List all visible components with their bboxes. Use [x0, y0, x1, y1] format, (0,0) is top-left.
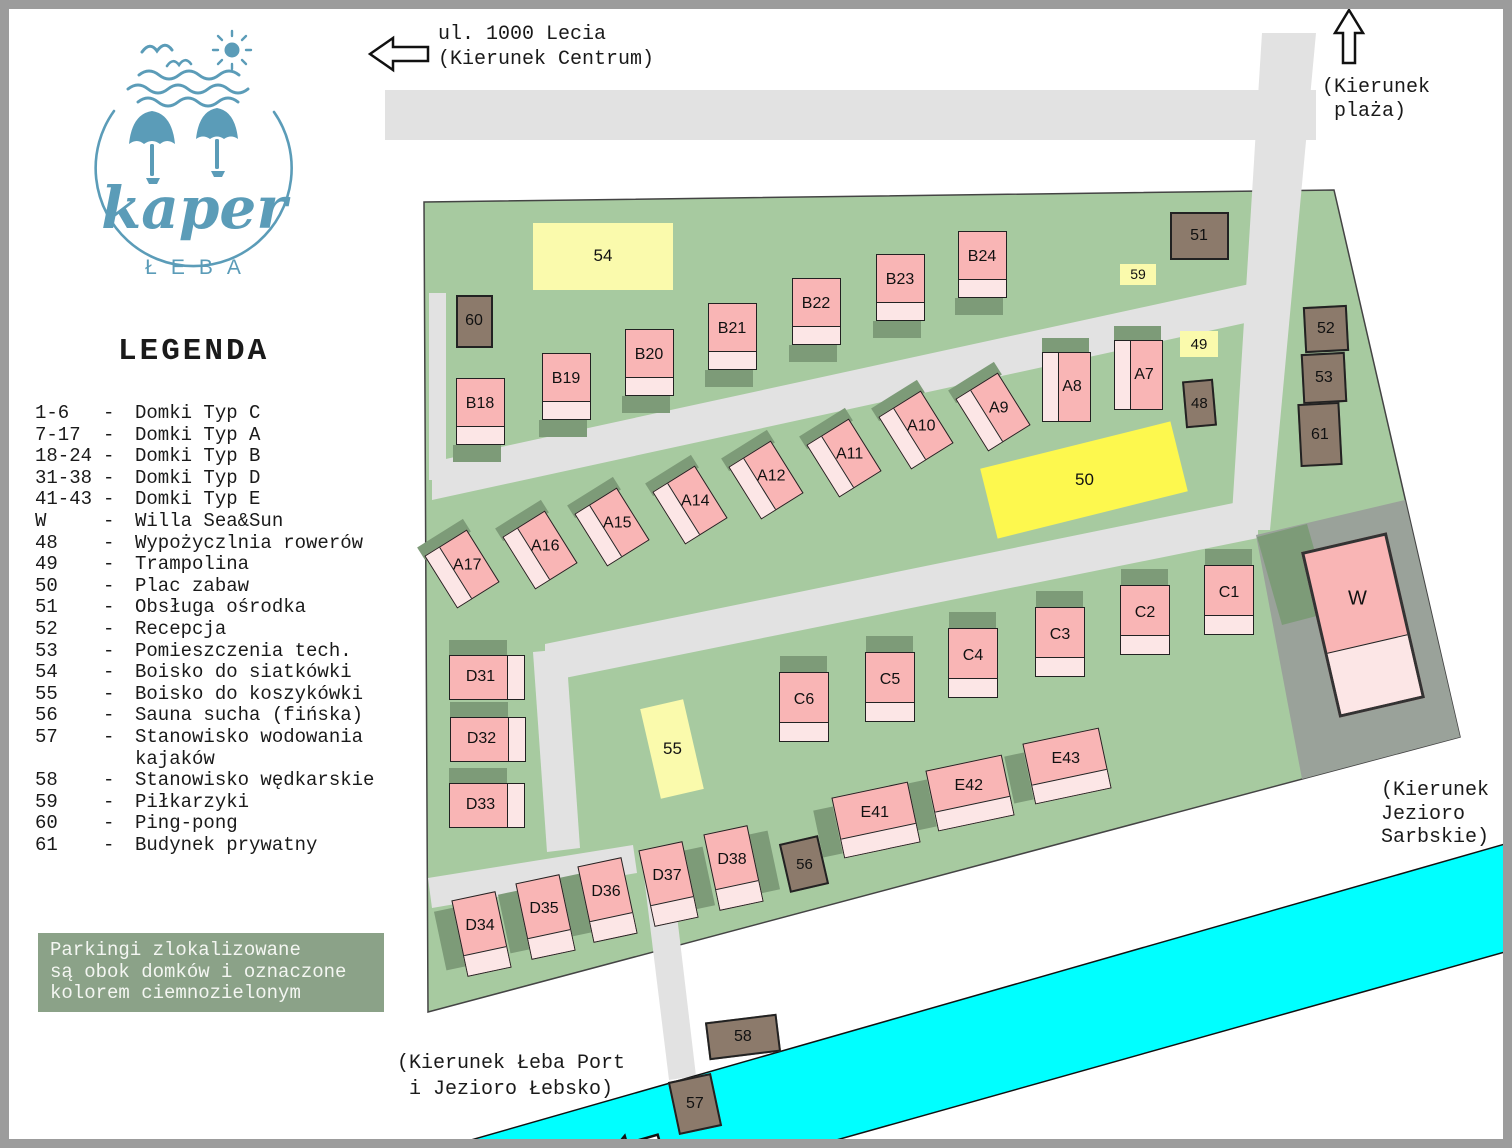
- parking-B24: [955, 298, 1003, 315]
- parking-B22: [789, 345, 837, 362]
- label-A10: A10: [907, 418, 935, 436]
- umbrella-icon: [196, 108, 238, 177]
- legend-key: 52: [35, 619, 103, 641]
- legend-item: 54-Boisko do siatkówki: [35, 662, 405, 684]
- parking-B18: [453, 445, 501, 462]
- legend-key: 53: [35, 641, 103, 663]
- parking-note: Parkingi zlokalizowane są obok domków i …: [38, 933, 384, 1012]
- legend-dash: -: [103, 576, 135, 598]
- label-D38: D38: [717, 851, 746, 869]
- cottage-A8: A8: [1042, 352, 1091, 422]
- legend-item: 49-Trampolina: [35, 554, 405, 576]
- porch-B24: [959, 279, 1006, 297]
- label-56: 56: [796, 856, 813, 873]
- legend-key: 61: [35, 835, 103, 857]
- porch-A8: [1043, 353, 1059, 421]
- legend-key: 1-6: [35, 403, 103, 425]
- label-A16: A16: [531, 538, 559, 556]
- porch-B22: [793, 326, 840, 344]
- label-A8: A8: [1062, 378, 1082, 396]
- porch-B18: [457, 426, 504, 444]
- legend-dash: -: [103, 770, 135, 792]
- direction-port: (Kierunek Łeba Port i Jezioro Łebsko): [397, 1051, 625, 1103]
- waves-icon: [128, 71, 248, 106]
- label-C4: C4: [963, 647, 983, 665]
- parking-note-line: Parkingi zlokalizowane: [50, 940, 372, 962]
- legend-label: Stanowisko wędkarskie: [135, 770, 387, 792]
- logo-brand: kaper: [101, 174, 291, 242]
- road-left-stub: [429, 293, 446, 480]
- sun-icon: [213, 31, 251, 69]
- legend-key: 54: [35, 662, 103, 684]
- legend-label: Piłkarzyki: [135, 792, 387, 814]
- parking-D31: [449, 640, 507, 655]
- legend-dash: -: [103, 489, 135, 511]
- legend-label: Domki Typ B: [135, 446, 387, 468]
- parking-note-line: kolorem ciemnozielonym: [50, 983, 372, 1005]
- label-51: 51: [1190, 227, 1208, 245]
- legend-label: Budynek prywatny: [135, 835, 387, 857]
- legend-label: Wypożyczlnia rowerów: [135, 533, 387, 555]
- label-D31: D31: [466, 668, 495, 686]
- label-D35: D35: [529, 900, 558, 918]
- legend-key: 49: [35, 554, 103, 576]
- label-52: 52: [1317, 320, 1335, 338]
- parking-C3: [1036, 591, 1083, 607]
- legend-dash: -: [103, 662, 135, 684]
- porch-C4: [949, 678, 997, 697]
- legend-item: 51-Obsługa ośrodka: [35, 597, 405, 619]
- label-55: 55: [663, 739, 682, 759]
- porch-B23: [877, 302, 924, 320]
- porch-B21: [709, 351, 756, 369]
- label-61: 61: [1311, 425, 1329, 443]
- label-D33: D33: [466, 796, 495, 814]
- legend-label: Domki Typ A: [135, 425, 387, 447]
- parking-B23: [873, 321, 921, 338]
- porch-C5: [866, 702, 914, 721]
- resort-map-page: kaper ŁEBA ul. 1000 Lecia(Kierunek Centr…: [0, 0, 1512, 1148]
- legend-item: 31-38-Domki Typ D: [35, 468, 405, 490]
- legend-key: 41-43: [35, 489, 103, 511]
- label-C2: C2: [1135, 604, 1155, 622]
- legend-dash: -: [103, 705, 135, 727]
- porch-C3: [1036, 657, 1084, 676]
- label-59: 59: [1130, 266, 1146, 282]
- label-A14: A14: [681, 493, 709, 511]
- parking-D32: [450, 702, 508, 717]
- legend-item: 57-Stanowisko wodowania kajaków: [35, 727, 405, 770]
- legend-dash: -: [103, 468, 135, 490]
- parking-A7: [1114, 326, 1161, 340]
- label-49: 49: [1191, 336, 1208, 353]
- cottage-B18: B18: [456, 378, 505, 445]
- legend-label: Recepcja: [135, 619, 387, 641]
- cottage-C1: C1: [1204, 565, 1254, 635]
- label-B23: B23: [886, 271, 914, 289]
- legend-label: Domki Typ C: [135, 403, 387, 425]
- label-A11: A11: [836, 446, 863, 464]
- legend-key: 60: [35, 813, 103, 835]
- legend-key: W: [35, 511, 103, 533]
- legend-item: W-Willa Sea&Sun: [35, 511, 405, 533]
- label-C6: C6: [794, 691, 814, 709]
- legend-dash: -: [103, 684, 135, 706]
- legend-key: 58: [35, 770, 103, 792]
- legend-item: 56-Sauna sucha (fińska): [35, 705, 405, 727]
- legend-dash: -: [103, 641, 135, 663]
- legend-item: 53-Pomieszczenia tech.: [35, 641, 405, 663]
- legend-key: 18-24: [35, 446, 103, 468]
- legend-dash: -: [103, 619, 135, 641]
- parking-B19: [539, 420, 587, 437]
- legend-item: 58-Stanowisko wędkarskie: [35, 770, 405, 792]
- legend-label: Domki Typ D: [135, 468, 387, 490]
- porch-B19: [543, 401, 590, 419]
- label-C1: C1: [1219, 584, 1239, 602]
- parking-note-line: są obok domków i oznaczone: [50, 962, 372, 984]
- area-61: 61: [1297, 401, 1342, 466]
- porch-C2: [1121, 635, 1169, 654]
- parking-C2: [1121, 569, 1168, 585]
- legend-key: 7-17: [35, 425, 103, 447]
- label-B18: B18: [466, 395, 494, 413]
- porch-A7: [1115, 341, 1131, 409]
- legend-list: 1-6-Domki Typ C7-17-Domki Typ A18-24-Dom…: [35, 403, 405, 856]
- legend-key: 50: [35, 576, 103, 598]
- direction-sarbskie: (KierunekJezioroSarbskie): [1381, 779, 1489, 850]
- label-B24: B24: [968, 248, 996, 266]
- legend-item: 7-17-Domki Typ A: [35, 425, 405, 447]
- legend-label: Sauna sucha (fińska): [135, 705, 387, 727]
- label-B21: B21: [718, 320, 746, 338]
- cottage-A7: A7: [1114, 340, 1163, 410]
- cottage-C3: C3: [1035, 607, 1085, 677]
- label-A12: A12: [757, 468, 785, 486]
- area-59: 59: [1120, 264, 1156, 285]
- area-51: 51: [1170, 212, 1229, 260]
- legend-dash: -: [103, 554, 135, 576]
- logo-city: ŁEBA: [145, 256, 255, 279]
- cottage-D32: D32: [450, 717, 526, 762]
- label-A9: A9: [989, 400, 1009, 418]
- label-A15: A15: [603, 515, 631, 533]
- porch-D31: [507, 656, 524, 699]
- label-A7: A7: [1134, 366, 1154, 384]
- legend-item: 41-43-Domki Typ E: [35, 489, 405, 511]
- porch-D32: [508, 718, 525, 761]
- porch-B20: [626, 377, 673, 395]
- label-48: 48: [1191, 395, 1208, 412]
- legend-key: 51: [35, 597, 103, 619]
- legend-label: Boisko do siatkówki: [135, 662, 387, 684]
- cottage-B21: B21: [708, 303, 757, 370]
- legend-item: 55-Boisko do koszykówki: [35, 684, 405, 706]
- label-C3: C3: [1050, 626, 1070, 644]
- street-label: ul. 1000 Lecia(Kierunek Centrum): [438, 22, 654, 72]
- label-E42: E42: [954, 777, 982, 795]
- cottage-D33: D33: [449, 783, 525, 828]
- bird-icon: [142, 45, 172, 52]
- label-D34: D34: [465, 917, 494, 935]
- label-C5: C5: [880, 671, 900, 689]
- label-B22: B22: [802, 295, 830, 313]
- legend-item: 48-Wypożyczlnia rowerów: [35, 533, 405, 555]
- legend-key: 57: [35, 727, 103, 770]
- porch-C6: [780, 722, 828, 741]
- cottage-C4: C4: [948, 628, 998, 698]
- label-60: 60: [465, 312, 483, 330]
- legend-dash: -: [103, 727, 135, 770]
- legend-item: 61-Budynek prywatny: [35, 835, 405, 857]
- label-54: 54: [594, 246, 613, 266]
- porch-C1: [1205, 615, 1253, 634]
- legend-item: 52-Recepcja: [35, 619, 405, 641]
- label-57: 57: [686, 1095, 704, 1113]
- label-A17: A17: [453, 557, 481, 575]
- legend-item: 50-Plac zabaw: [35, 576, 405, 598]
- porch-D33: [507, 784, 524, 827]
- bird-icon: [167, 60, 191, 66]
- cottage-C2: C2: [1120, 585, 1170, 655]
- cottage-B20: B20: [625, 329, 674, 396]
- legend-dash: -: [103, 511, 135, 533]
- direction-beach: (Kierunek plaża): [1322, 76, 1430, 123]
- parking-C1: [1205, 549, 1252, 565]
- legend-key: 48: [35, 533, 103, 555]
- label-58: 58: [734, 1028, 752, 1046]
- label-E41: E41: [860, 804, 888, 822]
- label-50: 50: [1075, 470, 1094, 490]
- legend-label: Obsługa ośrodka: [135, 597, 387, 619]
- cottage-B24: B24: [958, 231, 1007, 298]
- label-D36: D36: [591, 883, 620, 901]
- kaper-logo: kaper ŁEBA: [96, 31, 292, 279]
- parking-A8: [1042, 338, 1089, 352]
- parking-C5: [866, 636, 913, 652]
- area-60: 60: [456, 295, 493, 348]
- cottage-B22: B22: [792, 278, 841, 345]
- legend-title: LEGENDA: [118, 334, 269, 369]
- legend-label: Ping-pong: [135, 813, 387, 835]
- legend-key: 31-38: [35, 468, 103, 490]
- legend-dash: -: [103, 533, 135, 555]
- legend-dash: -: [103, 446, 135, 468]
- cottage-B19: B19: [542, 353, 591, 420]
- label-D32: D32: [467, 730, 496, 748]
- label-B19: B19: [552, 370, 580, 388]
- legend-item: 1-6-Domki Typ C: [35, 403, 405, 425]
- arrow-left-centrum-icon: [370, 38, 428, 70]
- arrow-up-beach-icon: [1335, 10, 1363, 63]
- parking-C6: [780, 656, 827, 672]
- legend-dash: -: [103, 835, 135, 857]
- legend-dash: -: [103, 792, 135, 814]
- area-54: 54: [533, 223, 673, 290]
- label-53: 53: [1315, 369, 1333, 387]
- legend-label: Boisko do koszykówki: [135, 684, 387, 706]
- area-49: 49: [1180, 331, 1218, 357]
- legend-key: 56: [35, 705, 103, 727]
- label-E43: E43: [1051, 750, 1079, 768]
- legend-dash: -: [103, 597, 135, 619]
- legend-dash: -: [103, 425, 135, 447]
- cottage-C6: C6: [779, 672, 829, 742]
- road-main-top: [385, 90, 1316, 140]
- label-W: W: [1348, 588, 1367, 611]
- legend-dash: -: [103, 403, 135, 425]
- legend-dash: -: [103, 813, 135, 835]
- legend-item: 18-24-Domki Typ B: [35, 446, 405, 468]
- area-53: 53: [1301, 352, 1348, 404]
- legend-item: 59-Piłkarzyki: [35, 792, 405, 814]
- legend-key: 59: [35, 792, 103, 814]
- cottage-C5: C5: [865, 652, 915, 722]
- area-48: 48: [1182, 378, 1217, 428]
- area-52: 52: [1303, 305, 1349, 353]
- legend-label: Plac zabaw: [135, 576, 387, 598]
- legend-label: Trampolina: [135, 554, 387, 576]
- legend-key: 55: [35, 684, 103, 706]
- label-D37: D37: [652, 867, 681, 885]
- parking-B21: [705, 370, 753, 387]
- legend-label: Pomieszczenia tech.: [135, 641, 387, 663]
- legend-label: Stanowisko wodowania kajaków: [135, 727, 387, 770]
- cottage-D31: D31: [449, 655, 525, 700]
- parking-D33: [449, 768, 507, 783]
- legend-label: Domki Typ E: [135, 489, 387, 511]
- parking-B20: [622, 396, 670, 413]
- parking-C4: [949, 612, 996, 628]
- cottage-B23: B23: [876, 254, 925, 321]
- label-B20: B20: [635, 346, 663, 364]
- legend-item: 60-Ping-pong: [35, 813, 405, 835]
- legend-label: Willa Sea&Sun: [135, 511, 387, 533]
